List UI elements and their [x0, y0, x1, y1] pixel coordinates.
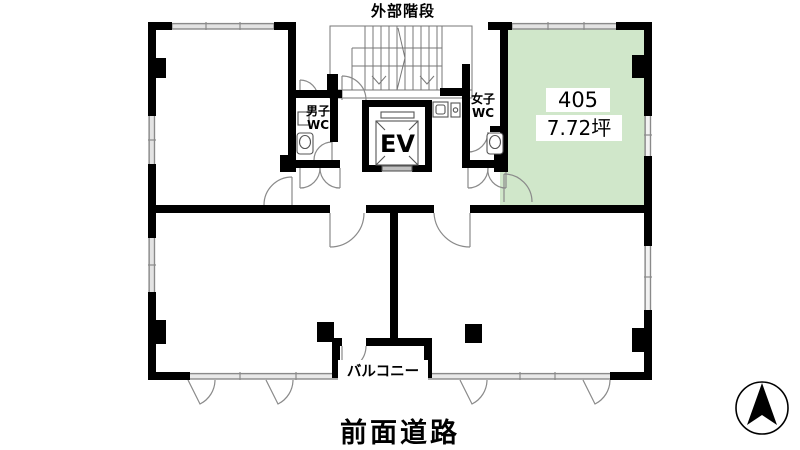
elevator-label: EV	[369, 130, 426, 158]
floor-plan-drawing	[0, 0, 800, 450]
room-area-label: 7.72坪	[536, 115, 622, 141]
balcony-label: バルコニー	[338, 360, 428, 381]
mens-wc-label-line2: WC	[299, 119, 337, 133]
room-number-label: 405	[546, 88, 610, 112]
staircase	[330, 26, 472, 98]
washbasin-icon	[433, 102, 460, 117]
womens-wc-label-line2: WC	[464, 107, 502, 121]
stair-label: 外部階段	[338, 0, 468, 21]
womens-toilet-icon	[487, 133, 503, 154]
mens-wc-label-line1: 男子	[299, 105, 337, 119]
floor-plan: 外部階段 405 7.72坪 EV 男子 WC 女子 WC バルコニー 前面道路	[0, 0, 800, 450]
womens-wc-label-line1: 女子	[464, 93, 502, 107]
road-label: 前面道路	[310, 411, 490, 450]
mens-wc-label: 男子 WC	[299, 105, 337, 132]
womens-wc-label: 女子 WC	[464, 93, 502, 120]
compass-north-icon	[736, 382, 788, 434]
